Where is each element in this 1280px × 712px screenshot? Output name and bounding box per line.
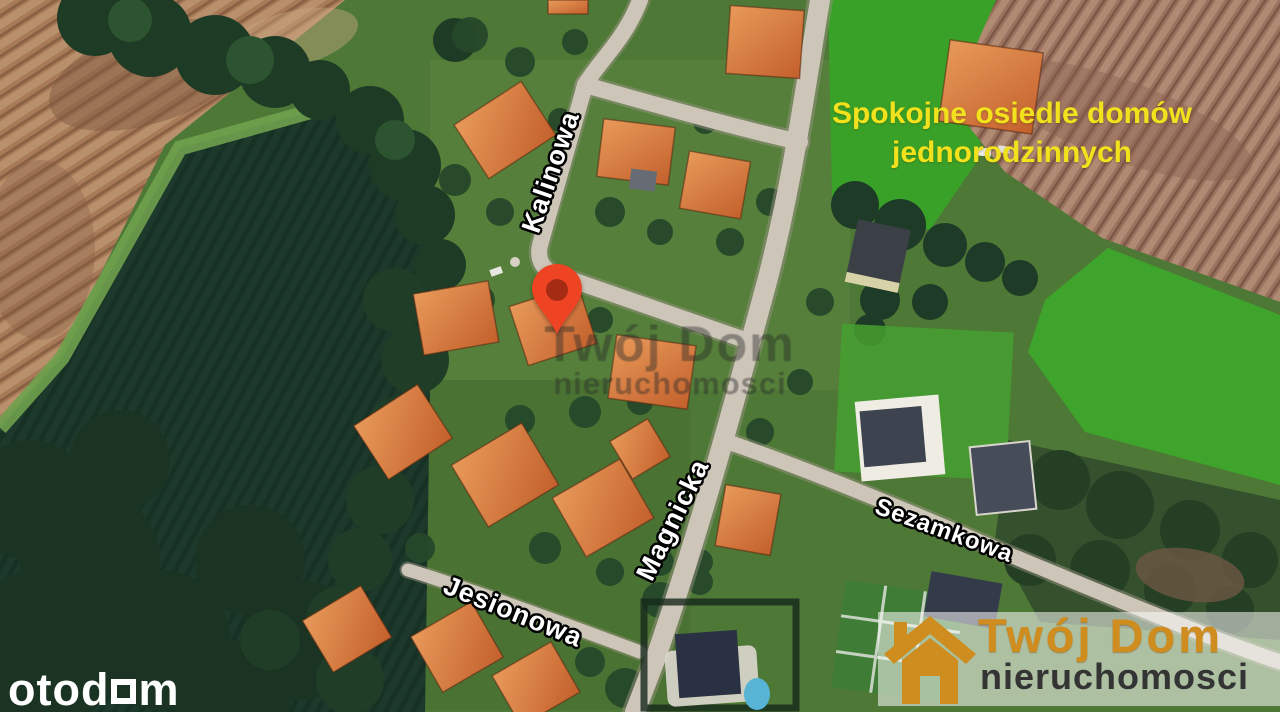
caption-line1: Spokojne osiedle domów [830,94,1194,133]
caption-line2: jednorodzinnych [830,133,1194,172]
otodom-text-left: otod [8,664,109,712]
twojdom-title: Twój Dom [978,608,1223,663]
listing-map-image: Kalinowa Magnicka Sezamkowa Jesionowa Sp… [0,0,1280,712]
twojdom-house-icon [882,614,978,706]
otodom-text-right: m [138,664,179,712]
location-pin-icon [528,262,586,336]
twojdom-subtitle: nieruchomosci [980,656,1249,698]
caption: Spokojne osiedle domów jednorodzinnych [830,94,1194,172]
otodom-square-o-glyph [111,679,136,704]
twojdom-logo: Twój Dom nieruchomosci [878,612,1280,706]
otodom-logo: otodm [8,668,179,712]
